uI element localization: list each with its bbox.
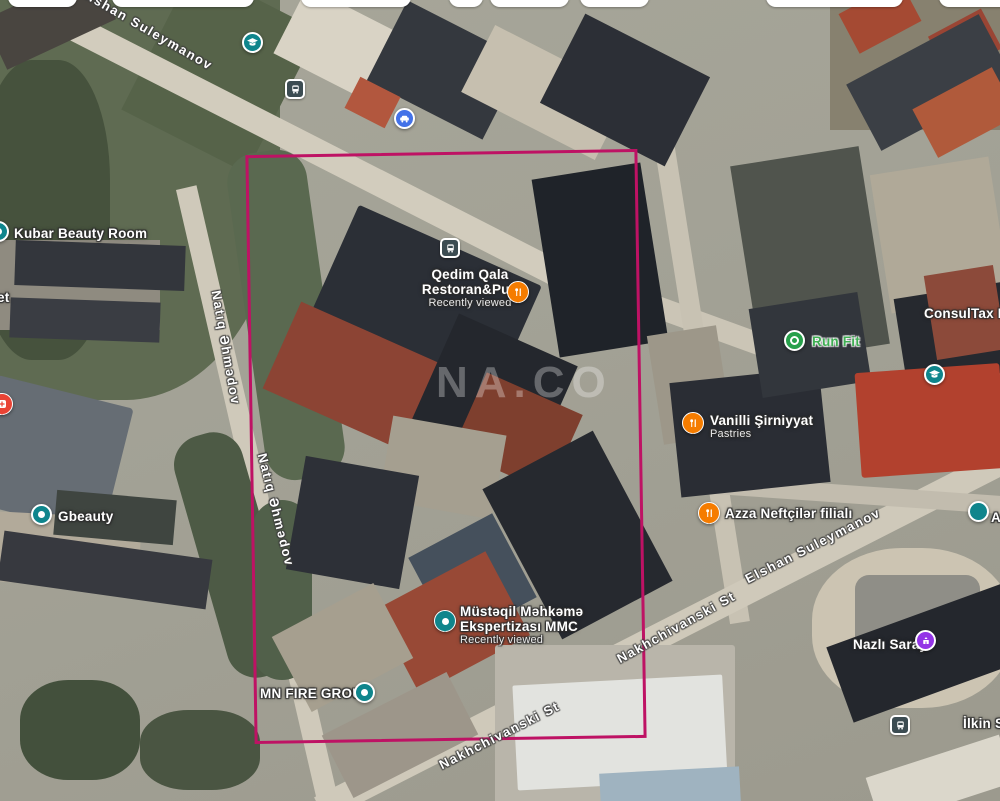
- bus-icon: [290, 84, 301, 95]
- palace-icon: [920, 635, 932, 647]
- graduation-cap-icon: [246, 36, 259, 49]
- education-icon[interactable]: [242, 32, 263, 53]
- transit-station-icon[interactable]: [440, 238, 460, 258]
- top-chip[interactable]: [301, 0, 411, 7]
- place-label-consultax[interactable]: ConsulTax MMC: [924, 306, 1000, 321]
- fork-knife-icon: [513, 287, 524, 298]
- top-chip[interactable]: [449, 0, 483, 7]
- transit-station-icon[interactable]: [285, 79, 305, 99]
- vegetation-area: [140, 710, 260, 790]
- bus-icon: [895, 720, 906, 731]
- partial-poi-icon[interactable]: [968, 501, 989, 522]
- education-icon[interactable]: [924, 364, 945, 385]
- restaurant-pin-icon[interactable]: [698, 502, 720, 524]
- fitness-icon[interactable]: [784, 330, 805, 351]
- place-label-right-edge-partial: A: [991, 510, 1000, 525]
- bus-icon: [445, 243, 456, 254]
- poi-pin-icon[interactable]: [434, 610, 456, 632]
- building-dark-roof: [9, 297, 160, 342]
- place-label-runfit[interactable]: Run Fit: [812, 334, 860, 349]
- place-name-line2: Ekspertizası MMC: [460, 619, 583, 634]
- medical-cross-icon: [0, 398, 8, 410]
- place-name: Vanilli Şirniyyat: [710, 413, 813, 428]
- place-label-azza[interactable]: Azza Neftçilər filialı: [725, 506, 852, 521]
- satellite-map[interactable]: NA.CO Elshan Suleymanov Natıq Əhmədov Na…: [0, 0, 1000, 801]
- graduation-cap-icon: [928, 368, 941, 381]
- top-chip[interactable]: [939, 0, 1000, 7]
- top-chip[interactable]: [8, 0, 77, 7]
- restaurant-pin-icon[interactable]: [507, 281, 529, 303]
- top-chip[interactable]: [490, 0, 569, 7]
- restaurant-pin-icon[interactable]: [682, 412, 704, 434]
- place-name-line1: Müstəqil Məhkəmə: [460, 604, 583, 619]
- top-chip[interactable]: [112, 0, 254, 7]
- visited-poi-icon[interactable]: [31, 504, 52, 525]
- place-status: Recently viewed: [460, 634, 583, 646]
- place-name-line1: Qedim Qala: [395, 267, 545, 282]
- shopping-icon[interactable]: [915, 630, 936, 651]
- top-chip[interactable]: [580, 0, 649, 7]
- place-label-mustaqil[interactable]: Müstəqil Məhkəmə Ekspertizası MMC Recent…: [460, 604, 583, 646]
- visited-poi-icon[interactable]: [354, 682, 375, 703]
- place-label-ilkin: İlkin St: [963, 716, 1000, 731]
- vegetation-area: [20, 680, 140, 780]
- building-blue-roof: [599, 766, 741, 801]
- transit-station-icon[interactable]: [890, 715, 910, 735]
- place-label-gbeauty[interactable]: Gbeauty: [58, 509, 113, 524]
- watermark: NA.CO: [436, 358, 613, 408]
- fork-knife-icon: [688, 418, 699, 429]
- place-label-kubar[interactable]: Kubar Beauty Room: [14, 226, 147, 241]
- building-block: [866, 735, 1000, 801]
- building-dark-roof: [14, 240, 185, 291]
- place-label-left-edge-partial: et: [0, 290, 9, 305]
- place-category: Pastries: [710, 428, 813, 440]
- car-service-icon[interactable]: [394, 108, 415, 129]
- top-chip[interactable]: [766, 0, 903, 7]
- pin-dot-icon: [442, 618, 449, 625]
- fork-knife-icon: [704, 508, 715, 519]
- car-icon: [398, 112, 411, 125]
- place-label-vanilli[interactable]: Vanilli Şirniyyat Pastries: [710, 413, 813, 440]
